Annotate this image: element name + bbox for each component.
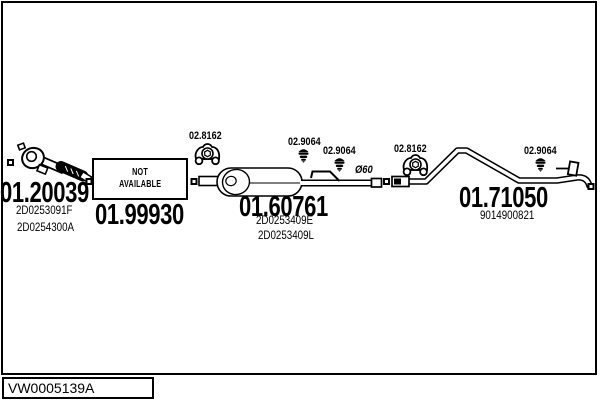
rubber-hanger-icon bbox=[299, 149, 309, 163]
oem-ref: 2D0253409E bbox=[256, 216, 313, 228]
oem-ref: 9014900821 bbox=[480, 211, 534, 223]
drawing-code: VW0005139A bbox=[8, 380, 94, 396]
oem-ref: 2D0253091F bbox=[16, 206, 73, 218]
oem-ref: 2D0254300A bbox=[17, 223, 74, 235]
part-number-tail-pipe[interactable]: 01.71050 bbox=[459, 184, 548, 213]
rubber-mount-icon bbox=[403, 155, 428, 175]
connector-marker bbox=[589, 184, 594, 189]
connector-marker bbox=[384, 179, 389, 184]
not-available-line2: AVAILABLE bbox=[119, 179, 161, 191]
mount-part-number[interactable]: 02.9064 bbox=[323, 146, 356, 157]
not-available-line1: NOT bbox=[132, 167, 148, 179]
connector-marker bbox=[192, 179, 197, 184]
connector-marker bbox=[8, 160, 13, 165]
part-number-front-pipe[interactable]: 01.20039 bbox=[0, 179, 89, 208]
mount-part-number[interactable]: 02.9064 bbox=[288, 137, 321, 148]
oem-ref: 2D0253409L bbox=[258, 231, 314, 243]
rubber-hanger-icon bbox=[335, 158, 345, 172]
not-available-box: NOT AVAILABLE bbox=[92, 158, 188, 200]
mount-part-number[interactable]: 02.9064 bbox=[524, 146, 557, 157]
mount-part-number[interactable]: 02.8162 bbox=[189, 131, 222, 142]
pipe-diameter-label: Ø60 bbox=[355, 165, 373, 176]
drawing-code-box: VW0005139A bbox=[2, 377, 154, 399]
rubber-hanger-icon bbox=[536, 158, 546, 172]
part-number-not-available[interactable]: 01.99930 bbox=[95, 201, 184, 230]
rubber-mount-icon bbox=[195, 144, 220, 164]
exhaust-diagram-page: 01.20039 2D0253091F 2D0254300A NOT AVAIL… bbox=[0, 0, 600, 400]
mount-part-number[interactable]: 02.8162 bbox=[394, 144, 427, 155]
